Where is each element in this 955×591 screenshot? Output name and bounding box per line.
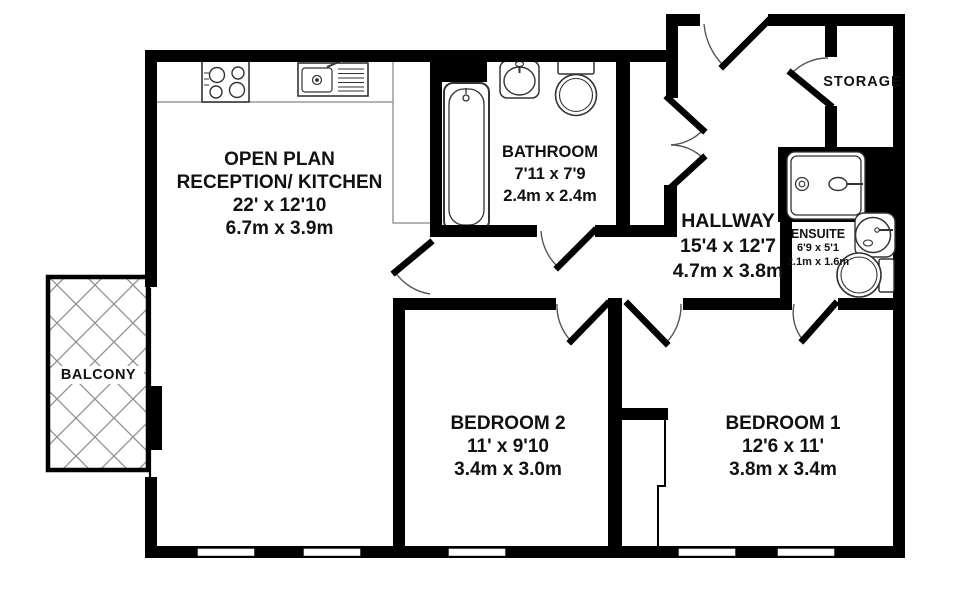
room-name: BEDROOM 1 (683, 412, 883, 435)
room-size-imperial: 11' x 9'10 (408, 435, 608, 458)
room-size-imperial: 12'6 x 11' (683, 435, 883, 458)
room-label-balcony: BALCONY (53, 366, 144, 384)
bedroom1-recess (658, 420, 665, 546)
room-name: BATHROOM (470, 141, 630, 163)
room-size-metric: 6.7m x 3.9m (157, 217, 402, 240)
room-name: OPEN PLAN (157, 148, 402, 171)
room-name: BALCONY (53, 366, 144, 384)
toilet-icon (556, 61, 597, 116)
room-size-metric: 2.1m x 1.6m (778, 255, 858, 269)
room-label-storage: STORAGE (820, 74, 905, 90)
room-size-metric: 2.4m x 2.4m (470, 185, 630, 207)
room-label-bedroom1: BEDROOM 1 12'6 x 11' 3.8m x 3.4m (683, 412, 883, 481)
basin-icon (500, 61, 539, 98)
room-size-imperial: 22' x 12'10 (157, 194, 402, 217)
kitchen-sink-icon (298, 59, 368, 96)
room-label-ensuite: ENSUITE 6'9 x 5'1 2.1m x 1.6m (778, 227, 858, 269)
floor-plan-drawing (0, 0, 955, 591)
room-label-bathroom: BATHROOM 7'11 x 7'9 2.4m x 2.4m (470, 141, 630, 207)
room-name: STORAGE (820, 74, 905, 90)
room-name: ENSUITE (778, 227, 858, 241)
room-name: BEDROOM 2 (408, 412, 608, 435)
floor-plan: OPEN PLAN RECEPTION/ KITCHEN 22' x 12'10… (0, 0, 955, 591)
room-size-imperial: 6'9 x 5'1 (778, 241, 858, 255)
room-name: RECEPTION/ KITCHEN (157, 171, 402, 194)
ensuite-basin-icon (855, 213, 895, 257)
room-size-metric: 3.8m x 3.4m (683, 458, 883, 481)
room-label-bedroom2: BEDROOM 2 11' x 9'10 3.4m x 3.0m (408, 412, 608, 481)
room-label-reception: OPEN PLAN RECEPTION/ KITCHEN 22' x 12'10… (157, 148, 402, 240)
room-size-metric: 3.4m x 3.0m (408, 458, 608, 481)
room-size-imperial: 7'11 x 7'9 (470, 163, 630, 185)
stove-icon (202, 61, 249, 102)
